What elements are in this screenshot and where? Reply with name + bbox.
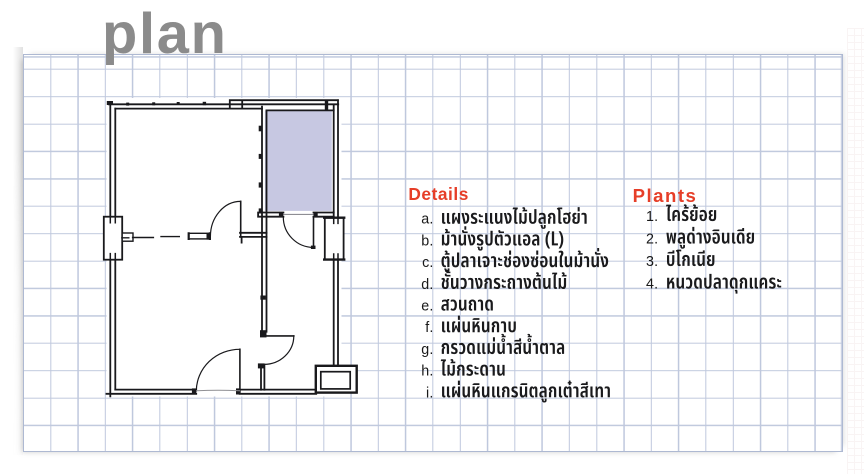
svg-text:c.: c. xyxy=(422,255,434,271)
svg-text:e.: e. xyxy=(421,299,433,315)
svg-text:a.: a. xyxy=(421,212,433,228)
svg-text:Plants: Plants xyxy=(633,185,698,206)
svg-text:Details: Details xyxy=(408,184,469,204)
svg-text:plan: plan xyxy=(102,2,228,66)
svg-text:i.: i. xyxy=(426,385,434,401)
svg-text:d.: d. xyxy=(421,277,433,293)
svg-text:4.: 4. xyxy=(646,277,658,293)
svg-text:h.: h. xyxy=(421,364,433,380)
svg-text:3.: 3. xyxy=(646,254,658,270)
svg-text:f.: f. xyxy=(425,320,433,336)
svg-text:2.: 2. xyxy=(646,232,658,248)
svg-text:g.: g. xyxy=(421,342,433,358)
svg-text:b.: b. xyxy=(421,233,433,249)
svg-text:1.: 1. xyxy=(646,209,658,225)
